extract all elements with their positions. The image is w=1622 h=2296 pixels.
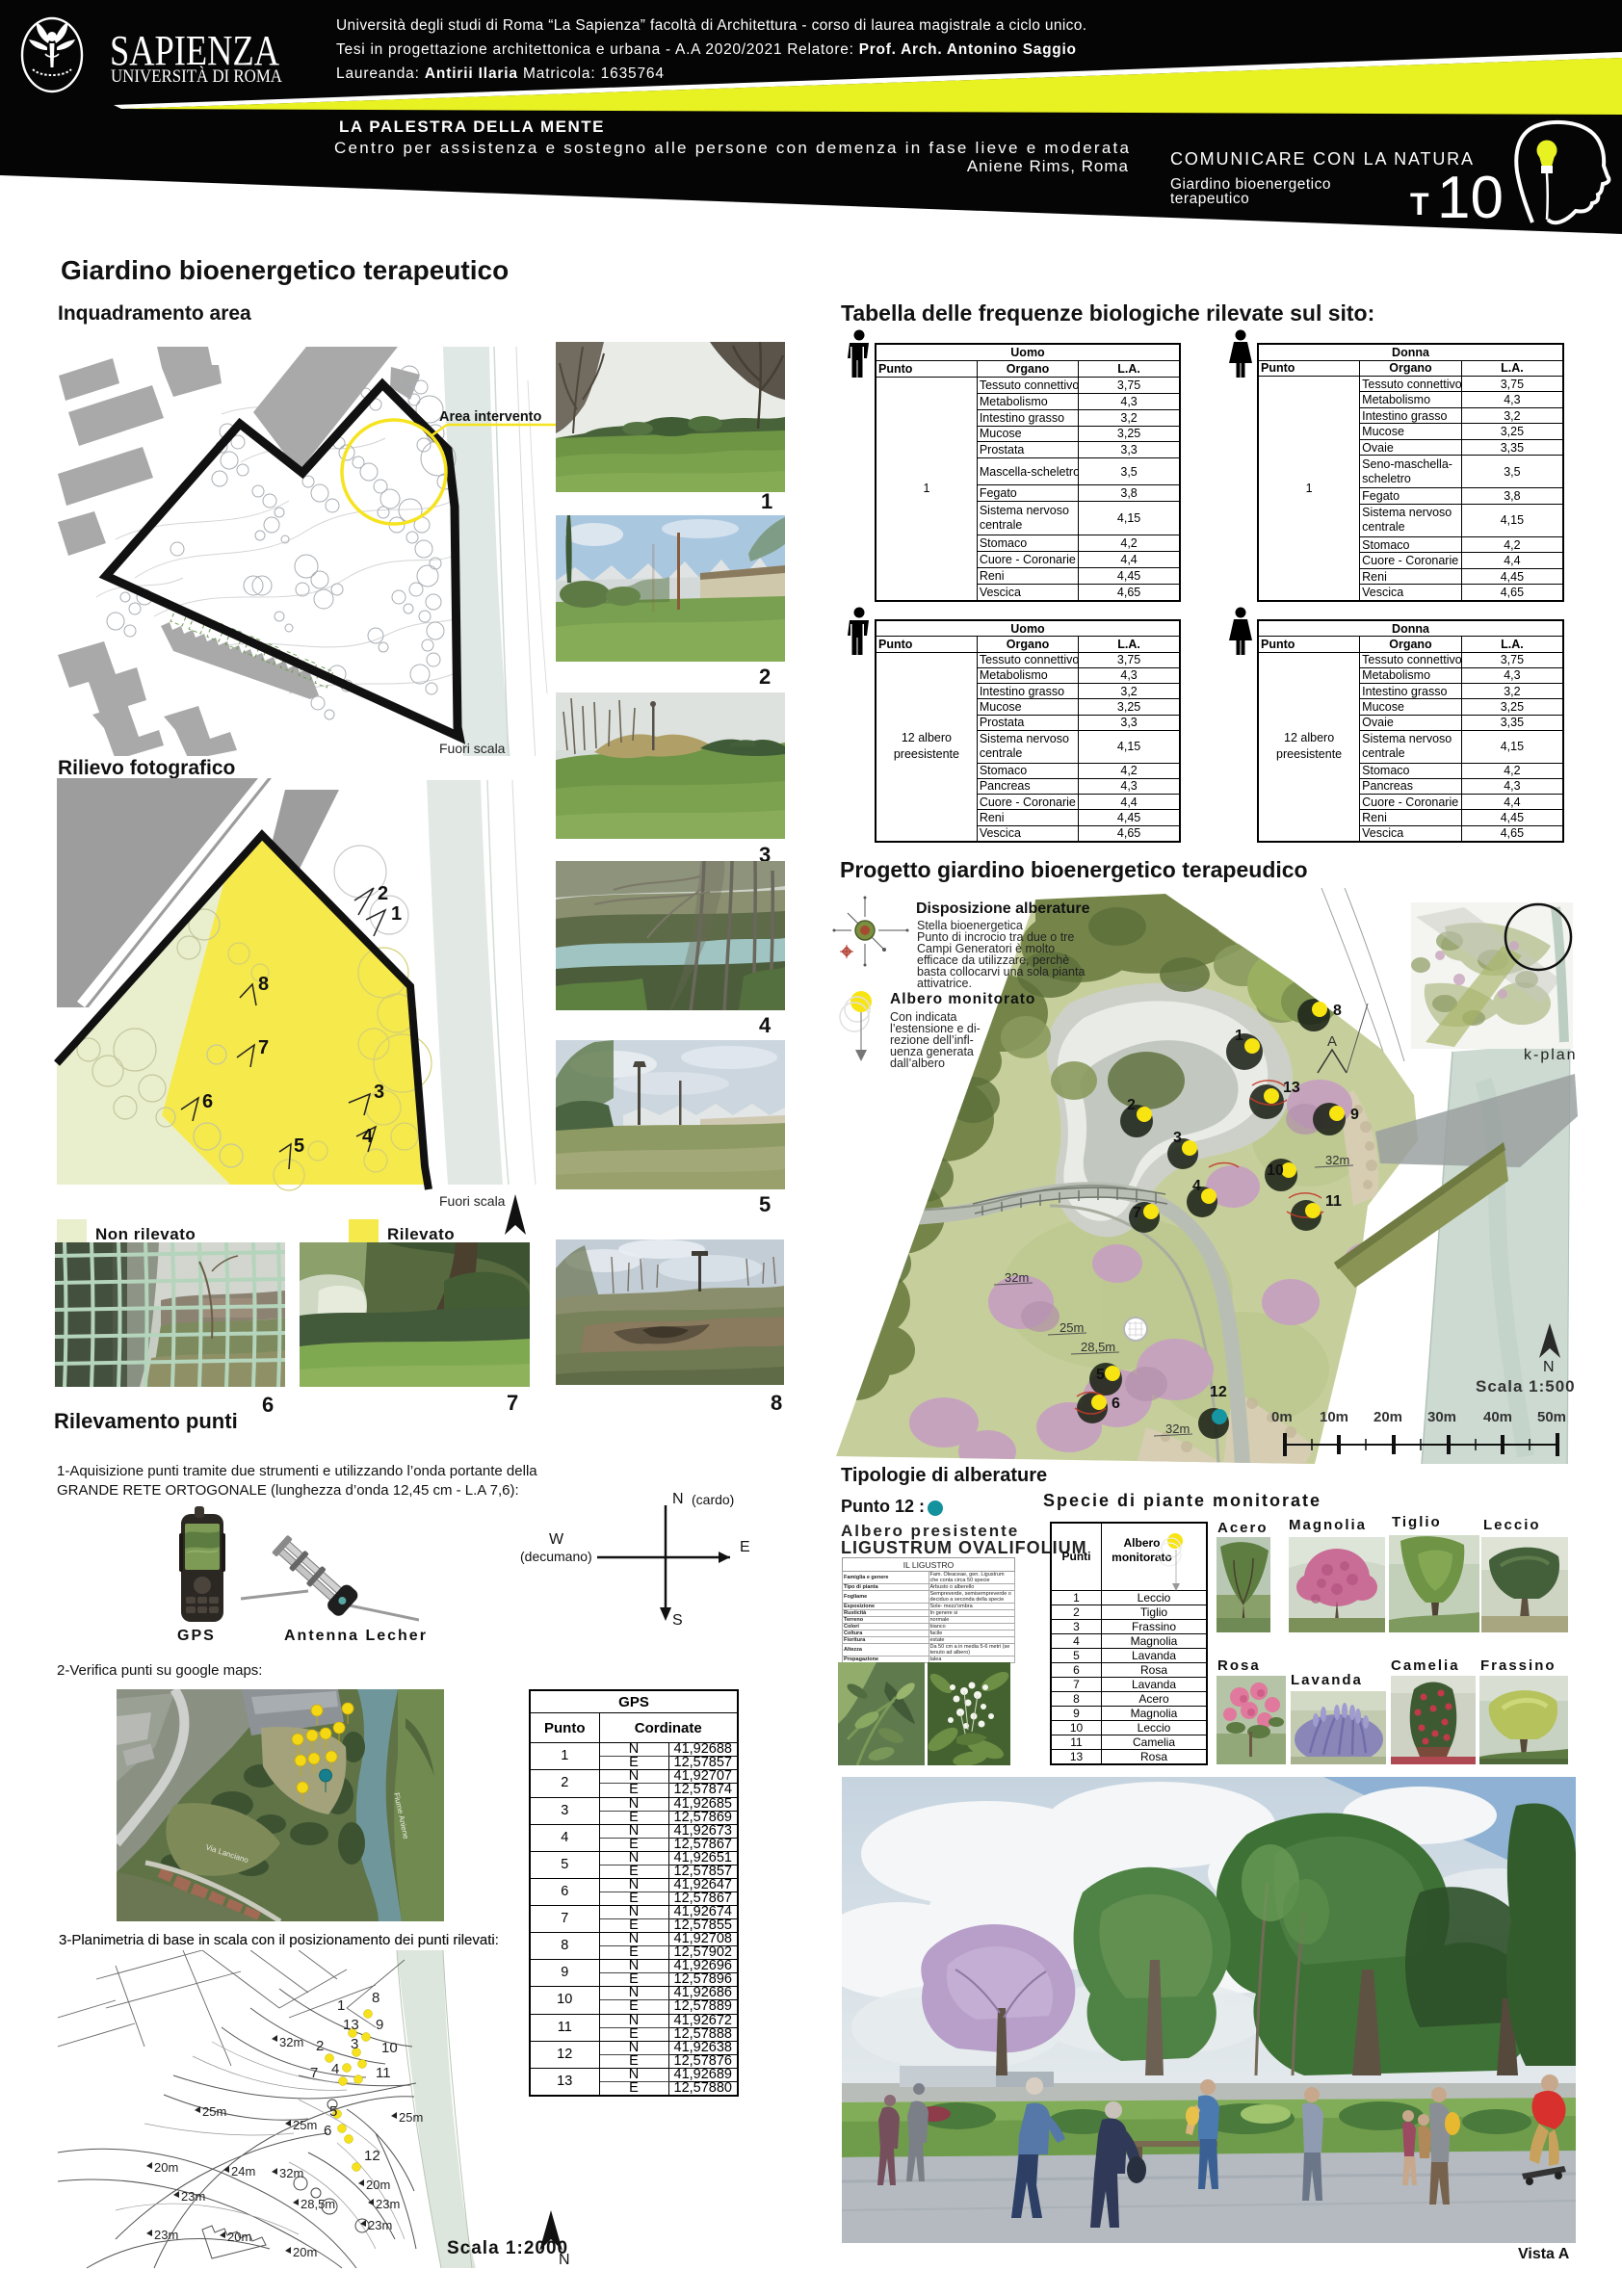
svg-text:UNIVERSITÀ DI ROMA: UNIVERSITÀ DI ROMA	[111, 65, 282, 87]
svg-text:6: 6	[324, 2123, 331, 2139]
svg-text:25m: 25m	[202, 2104, 226, 2119]
svg-text:9: 9	[376, 2017, 383, 2033]
svg-text:30m: 30m	[1427, 1409, 1456, 1425]
svg-text:11: 11	[1325, 1193, 1342, 1210]
svg-text:N: N	[1543, 1359, 1555, 1375]
svg-text:50m: 50m	[1537, 1409, 1566, 1425]
svg-text:W: W	[549, 1531, 564, 1548]
svg-text:E: E	[740, 1539, 750, 1555]
svg-text:23m: 23m	[368, 2218, 392, 2232]
svg-text:20m: 20m	[293, 2245, 317, 2259]
svg-text:25m: 25m	[399, 2110, 423, 2125]
svg-text:40m: 40m	[1483, 1409, 1512, 1425]
svg-text:Fuori scala: Fuori scala	[439, 1193, 506, 1209]
svg-text:32m: 32m	[1325, 1153, 1349, 1167]
svg-text:28,5m: 28,5m	[1081, 1340, 1115, 1354]
svg-text:Aniene Rims, Roma: Aniene Rims, Roma	[967, 157, 1129, 175]
svg-text:25m: 25m	[293, 2118, 317, 2132]
svg-text:32m: 32m	[279, 2035, 303, 2049]
svg-text:Centro per assistenza e sosteg: Centro per assistenza e sostegno alle pe…	[334, 139, 1130, 157]
svg-text:LA PALESTRA DELLA MENTE: LA PALESTRA DELLA MENTE	[339, 117, 605, 136]
svg-text:Disposizione alberature: Disposizione alberature	[916, 900, 1090, 917]
svg-text:7: 7	[310, 2065, 318, 2081]
svg-text:4: 4	[362, 1126, 374, 1147]
svg-text:5: 5	[329, 2103, 337, 2120]
svg-text:32m: 32m	[1165, 1422, 1190, 1436]
svg-text:2: 2	[378, 883, 388, 904]
svg-text:Scala 1:2000: Scala 1:2000	[447, 2238, 568, 2258]
svg-text:N: N	[672, 1491, 684, 1507]
svg-text:(cardo): (cardo)	[692, 1492, 734, 1507]
svg-text:11: 11	[376, 2065, 391, 2081]
svg-text:(decumano): (decumano)	[520, 1549, 592, 1564]
svg-text:13: 13	[1283, 1080, 1300, 1096]
svg-text:attivatrice.: attivatrice.	[917, 977, 972, 990]
svg-text:2: 2	[316, 2038, 324, 2054]
svg-text:12: 12	[364, 2148, 380, 2164]
svg-text:9: 9	[1350, 1107, 1359, 1123]
svg-text:Tesi in progettazione architet: Tesi in progettazione architettonica e u…	[336, 41, 1076, 58]
svg-text:terapeutico: terapeutico	[1170, 191, 1249, 207]
svg-text:N: N	[559, 2252, 570, 2268]
svg-text:Non rilevato: Non rilevato	[95, 1225, 196, 1243]
svg-text:23m: 23m	[154, 2228, 178, 2242]
svg-text:12: 12	[1210, 1384, 1227, 1400]
svg-text:6: 6	[1112, 1396, 1120, 1412]
svg-text:8: 8	[258, 974, 269, 995]
svg-text:20m: 20m	[227, 2230, 251, 2244]
svg-text:8: 8	[372, 1990, 379, 2006]
svg-text:2: 2	[1127, 1097, 1136, 1113]
svg-text:4: 4	[331, 2061, 339, 2077]
svg-text:10: 10	[1437, 165, 1504, 231]
svg-text:3: 3	[351, 2036, 358, 2052]
svg-text:1: 1	[391, 903, 402, 925]
svg-text:Laureanda: Antirii Ilaria Mat: Laureanda: Antirii Ilaria Matricola: 163…	[336, 65, 664, 82]
svg-text:6: 6	[202, 1091, 213, 1112]
svg-text:32m: 32m	[1005, 1270, 1029, 1285]
svg-text:Fuori scala: Fuori scala	[439, 741, 506, 756]
svg-text:k-plan: k-plan	[1524, 1047, 1578, 1063]
svg-text:S: S	[672, 1612, 683, 1629]
svg-text:10: 10	[1267, 1162, 1284, 1179]
svg-text:Rilevato: Rilevato	[387, 1225, 455, 1243]
svg-text:Albero monitorato: Albero monitorato	[890, 991, 1035, 1007]
svg-text:7: 7	[1133, 1205, 1141, 1221]
svg-text:Università degli studi di Roma: Università degli studi di Roma “La Sapie…	[336, 17, 1086, 34]
svg-text:28,5m: 28,5m	[301, 2197, 335, 2211]
svg-text:32m: 32m	[279, 2166, 303, 2180]
svg-text:20m: 20m	[366, 2178, 390, 2192]
svg-text:10m: 10m	[1320, 1409, 1348, 1425]
svg-text:20m: 20m	[154, 2160, 178, 2175]
svg-text:10: 10	[381, 2040, 398, 2056]
svg-text:COMUNICARE CON LA NATURA: COMUNICARE CON LA NATURA	[1170, 149, 1473, 169]
svg-text:1: 1	[1235, 1028, 1243, 1044]
svg-text:dall’albero: dall’albero	[890, 1057, 945, 1070]
svg-text:4: 4	[1192, 1178, 1201, 1194]
svg-text:5: 5	[294, 1135, 304, 1157]
svg-text:23m: 23m	[181, 2189, 205, 2204]
svg-text:5: 5	[1096, 1367, 1105, 1383]
svg-text:13: 13	[343, 2017, 359, 2033]
svg-text:0m: 0m	[1271, 1409, 1293, 1425]
svg-text:25m: 25m	[1060, 1320, 1084, 1335]
svg-text:3: 3	[1173, 1130, 1182, 1146]
svg-text:1: 1	[337, 1997, 345, 2014]
svg-text:7: 7	[258, 1037, 269, 1058]
svg-text:Scala 1:500: Scala 1:500	[1476, 1377, 1576, 1396]
svg-text:Area intervento: Area intervento	[439, 409, 542, 425]
svg-text:T: T	[1410, 187, 1429, 222]
svg-text:20m: 20m	[1373, 1409, 1402, 1425]
svg-text:A: A	[1327, 1033, 1337, 1050]
svg-text:23m: 23m	[376, 2197, 400, 2211]
svg-text:8: 8	[1333, 1003, 1342, 1019]
svg-text:3: 3	[374, 1082, 384, 1103]
svg-text:24m: 24m	[231, 2164, 255, 2179]
